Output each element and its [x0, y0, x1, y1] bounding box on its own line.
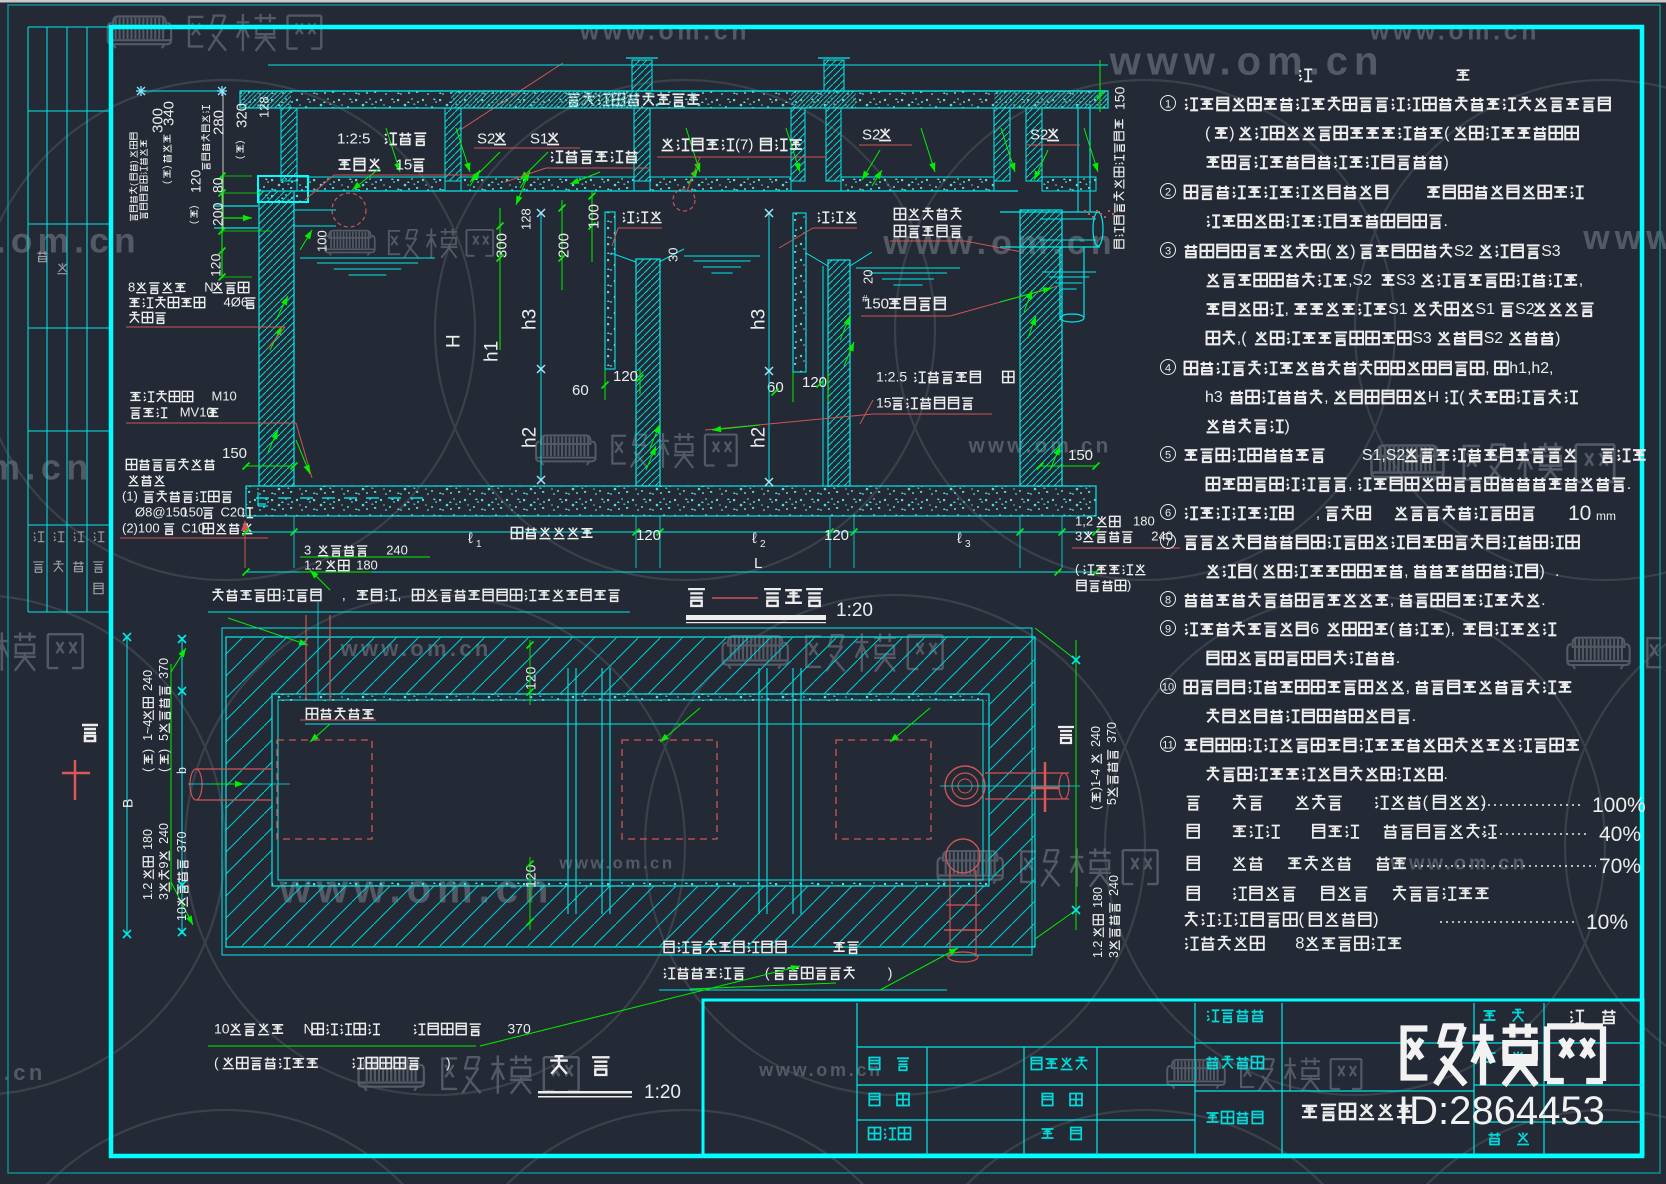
svg-text:8: 8 [128, 280, 135, 295]
svg-text:): ) [1285, 418, 1290, 435]
svg-text:,(: ,( [1237, 330, 1247, 347]
svg-text:128: 128 [519, 208, 534, 230]
svg-text:,: , [1404, 563, 1408, 580]
svg-text:,: , [1316, 505, 1320, 522]
svg-text:C20: C20 [221, 505, 245, 520]
svg-text:#: # [862, 294, 868, 305]
svg-text:1: 1 [476, 539, 482, 550]
svg-text:(: ( [1326, 243, 1332, 260]
svg-text:(: ( [1299, 911, 1305, 929]
svg-text:): ) [157, 749, 171, 753]
svg-text:5: 5 [157, 734, 171, 741]
svg-text:,: , [1579, 272, 1583, 289]
svg-text:15: 15 [396, 156, 413, 173]
svg-text:(: ( [765, 965, 770, 981]
svg-text:120: 120 [208, 253, 224, 277]
svg-text:128: 128 [257, 96, 272, 118]
svg-text:,: , [1485, 360, 1489, 377]
svg-text:): ) [446, 1055, 451, 1071]
svg-text:h1,h2,: h1,h2, [1509, 360, 1553, 377]
svg-text:3: 3 [157, 893, 171, 900]
svg-text:1.2: 1.2 [304, 558, 322, 573]
svg-text:h2: h2 [520, 427, 541, 448]
svg-text:150: 150 [181, 505, 203, 520]
svg-text:,: , [342, 587, 346, 603]
svg-text:h3: h3 [1205, 389, 1223, 406]
svg-text:(: ( [1444, 125, 1450, 142]
svg-text:h2: h2 [749, 427, 770, 448]
svg-text:): ) [162, 165, 173, 168]
svg-text:180: 180 [1091, 887, 1105, 908]
svg-text:(: ( [1205, 125, 1211, 142]
svg-text:N: N [304, 1021, 314, 1037]
svg-text:240: 240 [386, 543, 408, 558]
svg-text:(: ( [1459, 389, 1465, 406]
svg-text:120: 120 [636, 527, 661, 544]
svg-text:): ) [235, 140, 246, 143]
svg-text:60: 60 [572, 382, 589, 399]
svg-text:ℓ: ℓ [957, 530, 962, 547]
svg-text:,: , [1390, 592, 1394, 609]
svg-text:,S2: ,S2 [1348, 272, 1372, 289]
svg-text:),: ), [1445, 621, 1455, 638]
svg-text:,: , [1406, 679, 1410, 696]
svg-text:,: , [1324, 389, 1328, 406]
svg-text:1:20: 1:20 [836, 600, 873, 621]
svg-text:.: . [1555, 563, 1559, 580]
svg-text:370: 370 [175, 831, 189, 852]
svg-text:5: 5 [1165, 450, 1171, 462]
svg-text:www.om.cn: www.om.cn [1582, 219, 1666, 257]
svg-text:120: 120 [613, 368, 638, 385]
svg-text:mm: mm [1596, 509, 1616, 523]
svg-text:300: 300 [493, 233, 510, 258]
svg-text:(2)100: (2)100 [122, 521, 160, 536]
svg-text:S2: S2 [477, 130, 495, 147]
svg-text:30: 30 [666, 248, 681, 262]
svg-text:370: 370 [157, 658, 171, 679]
svg-text:240: 240 [1107, 875, 1121, 896]
svg-text:MV10: MV10 [180, 405, 214, 420]
svg-text:ID:2864453: ID:2864453 [1398, 1089, 1605, 1133]
svg-text:S1: S1 [530, 130, 548, 147]
svg-text:H: H [1428, 389, 1439, 406]
svg-text:150: 150 [864, 295, 889, 312]
svg-text:.: . [1444, 213, 1448, 230]
svg-text:): ) [1373, 911, 1379, 929]
svg-text:www.om.cn: www.om.cn [1109, 40, 1385, 84]
svg-text:(: ( [1423, 794, 1429, 812]
svg-text:10: 10 [175, 907, 189, 921]
svg-text:S3: S3 [1541, 243, 1561, 260]
svg-text:): ) [128, 160, 138, 163]
svg-text:)1-4: )1-4 [1089, 769, 1103, 791]
svg-text:3: 3 [1075, 529, 1082, 544]
svg-text:4Ø6: 4Ø6 [224, 295, 249, 310]
svg-text:3: 3 [965, 539, 971, 550]
svg-text:9: 9 [1165, 624, 1171, 636]
svg-text:Ø8@150: Ø8@150 [135, 505, 187, 520]
svg-text:.: . [1396, 650, 1400, 667]
svg-text:h3: h3 [520, 309, 541, 330]
svg-text:120: 120 [523, 666, 539, 690]
svg-text:www.om.cn: www.om.cn [758, 1060, 883, 1080]
svg-text:150: 150 [1068, 447, 1093, 464]
svg-text:6: 6 [1310, 621, 1319, 638]
svg-text:,: , [1285, 301, 1289, 318]
svg-text:9: 9 [157, 862, 171, 869]
svg-text:S2: S2 [1515, 301, 1535, 318]
svg-text:1:2:5: 1:2:5 [337, 130, 370, 147]
svg-text:10: 10 [214, 1021, 230, 1037]
svg-text:100%: 100% [1592, 794, 1646, 817]
svg-text:3: 3 [304, 543, 311, 558]
svg-text:): ) [141, 749, 155, 753]
svg-text:2: 2 [1165, 187, 1171, 199]
svg-text:S1: S1 [1388, 301, 1408, 318]
svg-text:10: 10 [1162, 682, 1174, 694]
svg-text:180: 180 [141, 829, 155, 850]
svg-text:3: 3 [1107, 951, 1121, 958]
svg-text:(1): (1) [122, 489, 138, 504]
svg-text:200: 200 [210, 202, 226, 226]
svg-text:15: 15 [876, 395, 892, 411]
svg-text:www.om.cn: www.om.cn [1369, 19, 1540, 46]
svg-text:www.om.cn: www.om.cn [1389, 852, 1527, 874]
svg-text:): ) [1229, 125, 1234, 142]
svg-text:ℓ: ℓ [752, 530, 757, 547]
svg-text:.: . [1412, 708, 1416, 725]
svg-text:1~4: 1~4 [141, 720, 155, 741]
svg-text:1:2.5: 1:2.5 [876, 369, 907, 385]
svg-text:): ) [189, 205, 200, 208]
svg-text:,: , [398, 587, 402, 603]
svg-text:H: H [444, 334, 465, 348]
svg-text:1:20: 1:20 [644, 1082, 681, 1103]
svg-text:120: 120 [188, 169, 204, 193]
svg-text:S2: S2 [862, 126, 880, 143]
svg-text:370: 370 [1105, 722, 1119, 743]
svg-text:20: 20 [861, 270, 876, 284]
svg-text:B: B [120, 799, 136, 808]
svg-text:280: 280 [210, 110, 227, 135]
svg-text:10%: 10% [1586, 911, 1628, 934]
svg-text:b: b [175, 767, 189, 774]
svg-text:(: ( [128, 183, 138, 186]
svg-text:8: 8 [1295, 935, 1304, 953]
svg-text:1,2: 1,2 [1075, 514, 1093, 529]
svg-text:S1: S1 [1476, 301, 1496, 318]
svg-text:): ) [1481, 794, 1487, 812]
svg-text:S3: S3 [1396, 272, 1416, 289]
svg-text:S1,S2: S1,S2 [1362, 447, 1405, 464]
svg-text:C10: C10 [181, 521, 205, 536]
svg-text:3: 3 [1165, 246, 1171, 258]
svg-text:): ) [1540, 563, 1545, 580]
svg-text:240: 240 [157, 823, 171, 844]
svg-text:(: ( [1389, 621, 1395, 638]
svg-text:40%: 40% [1599, 823, 1641, 846]
svg-text:S2: S2 [1484, 330, 1504, 347]
svg-text:(7): (7) [735, 136, 753, 153]
svg-text:): ) [1127, 578, 1131, 593]
svg-text:70%: 70% [1599, 855, 1641, 878]
svg-text:1.2: 1.2 [141, 883, 155, 900]
svg-text:N: N [204, 280, 213, 295]
svg-text:200: 200 [555, 233, 572, 258]
svg-text:2: 2 [760, 539, 766, 550]
svg-text:120: 120 [824, 527, 849, 544]
svg-text:120: 120 [523, 864, 539, 888]
svg-text:L: L [754, 555, 762, 572]
svg-text:10: 10 [1568, 502, 1591, 525]
svg-text:100: 100 [585, 204, 602, 229]
svg-text:www.om.cn: www.om.cn [0, 1060, 46, 1085]
svg-text:): ) [1555, 330, 1560, 347]
svg-text:240: 240 [1089, 726, 1103, 747]
svg-text:150: 150 [222, 445, 247, 462]
svg-text:(: ( [1075, 562, 1080, 577]
svg-text:www.om.cn: www.om.cn [882, 224, 1117, 262]
svg-text:120: 120 [802, 374, 827, 391]
svg-text:340: 340 [160, 101, 177, 126]
svg-text:240: 240 [141, 670, 155, 691]
svg-text:): ) [1444, 154, 1449, 171]
svg-text:h3: h3 [749, 309, 770, 330]
svg-text:(: ( [1253, 563, 1259, 580]
svg-text:4: 4 [1165, 363, 1171, 375]
svg-text:S2: S2 [1030, 126, 1048, 143]
svg-text:7: 7 [1165, 537, 1171, 549]
svg-text:320: 320 [233, 103, 250, 128]
svg-text:1: 1 [1165, 99, 1171, 111]
svg-text:S3: S3 [1412, 330, 1432, 347]
svg-text:100: 100 [315, 230, 330, 252]
svg-text:.: . [1444, 766, 1448, 783]
svg-text:S2: S2 [1454, 243, 1474, 260]
svg-text:8: 8 [1165, 595, 1171, 607]
svg-text:www.om.cn: www.om.cn [579, 19, 750, 46]
svg-text:1.2: 1.2 [1091, 941, 1105, 958]
svg-text:www.om.cn: www.om.cn [0, 221, 141, 260]
svg-text:180: 180 [1133, 514, 1155, 529]
svg-text:11: 11 [1162, 740, 1173, 752]
svg-text:5: 5 [1105, 798, 1119, 805]
svg-text:6: 6 [1165, 508, 1171, 520]
svg-text:80: 80 [210, 177, 226, 193]
svg-text:M10: M10 [212, 389, 237, 404]
svg-text:.: . [1627, 476, 1631, 493]
svg-text:(: ( [214, 1055, 219, 1071]
svg-text:): ) [888, 965, 893, 981]
svg-text:h1: h1 [482, 341, 503, 362]
svg-text:): ) [1350, 243, 1355, 260]
svg-text:150: 150 [1112, 86, 1128, 110]
svg-text:.: . [1541, 592, 1545, 609]
svg-text:180: 180 [356, 558, 378, 573]
svg-text:,: , [1348, 476, 1352, 493]
svg-text:ℓ: ℓ [468, 530, 473, 547]
svg-text:60: 60 [767, 379, 784, 396]
